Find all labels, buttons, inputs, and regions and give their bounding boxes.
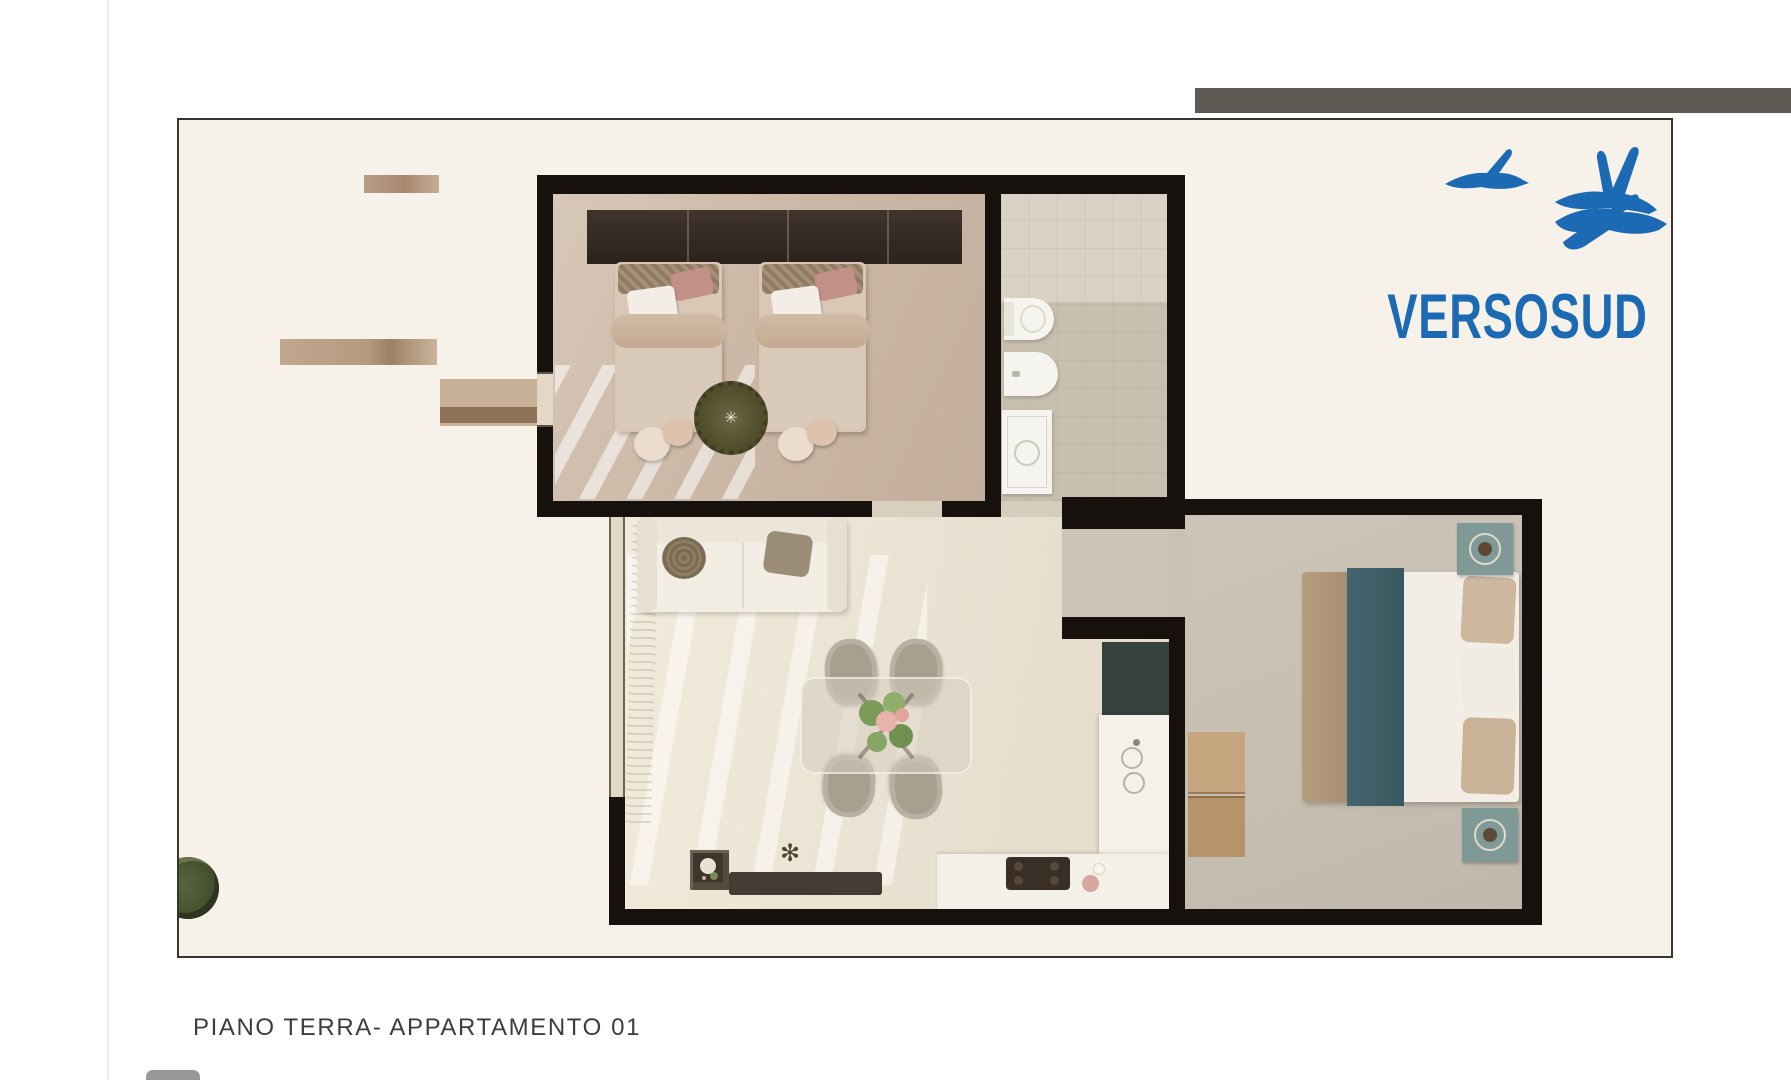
wall-segment	[537, 175, 553, 372]
tv-bench	[729, 872, 882, 895]
bed-blanket	[1302, 572, 1347, 802]
double-bed	[1302, 572, 1519, 802]
bed-duvet	[761, 350, 864, 428]
flower	[876, 711, 897, 732]
bidet	[1004, 352, 1058, 396]
bed-pillow	[1461, 647, 1516, 713]
framed-picture	[690, 850, 729, 890]
bird-icon-large-upper	[1555, 147, 1657, 214]
logo-wordmark: VERSOSUD	[1388, 286, 1648, 349]
window-sliding-door	[609, 517, 625, 797]
pouf	[807, 418, 837, 446]
wardrobe-wood	[1188, 732, 1245, 794]
dish	[1093, 863, 1105, 875]
terrace-step	[440, 379, 543, 426]
wardrobe-seam	[787, 210, 789, 264]
wall-segment	[537, 175, 1185, 194]
plant-centerpiece	[859, 692, 915, 759]
wall-segment	[1522, 499, 1542, 925]
wall-segment	[1062, 497, 1185, 529]
terrace-fragment	[280, 339, 437, 365]
sofa-back	[641, 517, 843, 543]
burner	[1050, 862, 1059, 871]
door-opening	[872, 501, 942, 517]
bed-blanket	[755, 314, 870, 348]
wall-segment	[537, 427, 553, 501]
wall-segment	[1167, 175, 1185, 497]
bed-blanket	[611, 314, 726, 348]
bed-pillow	[1460, 576, 1516, 645]
bathroom-sink	[1002, 410, 1052, 494]
window-edge-line	[107, 0, 109, 1080]
sink-bowl	[1123, 772, 1145, 794]
door-opening	[1169, 529, 1185, 617]
bed-runner-teal	[1347, 568, 1404, 806]
sofa-armrest	[637, 517, 657, 612]
cushion	[762, 530, 813, 578]
wall-segment	[609, 909, 1542, 925]
burner	[1014, 862, 1023, 871]
single-bed	[759, 262, 866, 432]
page-caption: PIANO TERRA- APPARTAMENTO 01	[193, 1014, 641, 1042]
wardrobe-seam	[887, 210, 889, 264]
dish	[1082, 875, 1099, 892]
lamp-icon	[1474, 819, 1506, 851]
door-opening	[1001, 501, 1062, 517]
kitchen-counter	[1099, 715, 1169, 854]
terrace-step-shadow	[440, 407, 543, 423]
sink-bowl	[1121, 747, 1143, 769]
hallway-floor	[1062, 529, 1185, 617]
wall-segment	[609, 797, 625, 909]
cooktop	[1006, 857, 1070, 890]
sofa-armrest	[827, 517, 847, 612]
nightstand	[1462, 808, 1518, 862]
bird-icon-small	[1445, 149, 1529, 189]
leaf	[867, 732, 887, 752]
wall-segment	[537, 501, 872, 517]
round-rug: ✳	[694, 381, 768, 455]
burner	[1050, 876, 1059, 885]
wall-segment	[985, 194, 1001, 501]
flowers	[700, 858, 716, 874]
screenshot-root: ✳	[0, 0, 1791, 1080]
screen-artifact	[146, 1070, 200, 1080]
bed-pillow	[1461, 717, 1517, 795]
wall-segment	[1062, 617, 1185, 639]
tree-top-icon	[177, 857, 219, 919]
kitchen-tall-unit	[1102, 642, 1169, 715]
document-page: ✳	[177, 118, 1673, 958]
woven-cushion	[662, 537, 706, 579]
sofa-seam	[742, 543, 744, 608]
lamp-icon	[1469, 533, 1501, 565]
terrace-fragment	[364, 175, 439, 193]
toilet-tank	[1004, 302, 1014, 336]
wall-segment	[1169, 499, 1542, 515]
nightstand	[1457, 523, 1513, 575]
wall-segment	[942, 501, 1001, 517]
small-plant-icon: ✻	[777, 841, 803, 867]
kitchen-tap	[1133, 739, 1140, 746]
logo-birds	[1437, 130, 1673, 265]
burner	[1014, 876, 1023, 885]
toilet-bowl	[1020, 305, 1046, 333]
window	[537, 372, 553, 427]
pouf	[663, 418, 693, 446]
toilet	[1004, 298, 1054, 340]
flower	[895, 708, 909, 722]
wardrobe-wood	[1188, 796, 1245, 857]
bidet-tap	[1012, 371, 1020, 377]
top-gray-band	[1195, 88, 1791, 113]
wall-segment	[1169, 639, 1185, 909]
sink-basin	[1014, 440, 1040, 466]
wardrobe-seam	[687, 210, 689, 264]
wardrobe	[587, 210, 962, 264]
